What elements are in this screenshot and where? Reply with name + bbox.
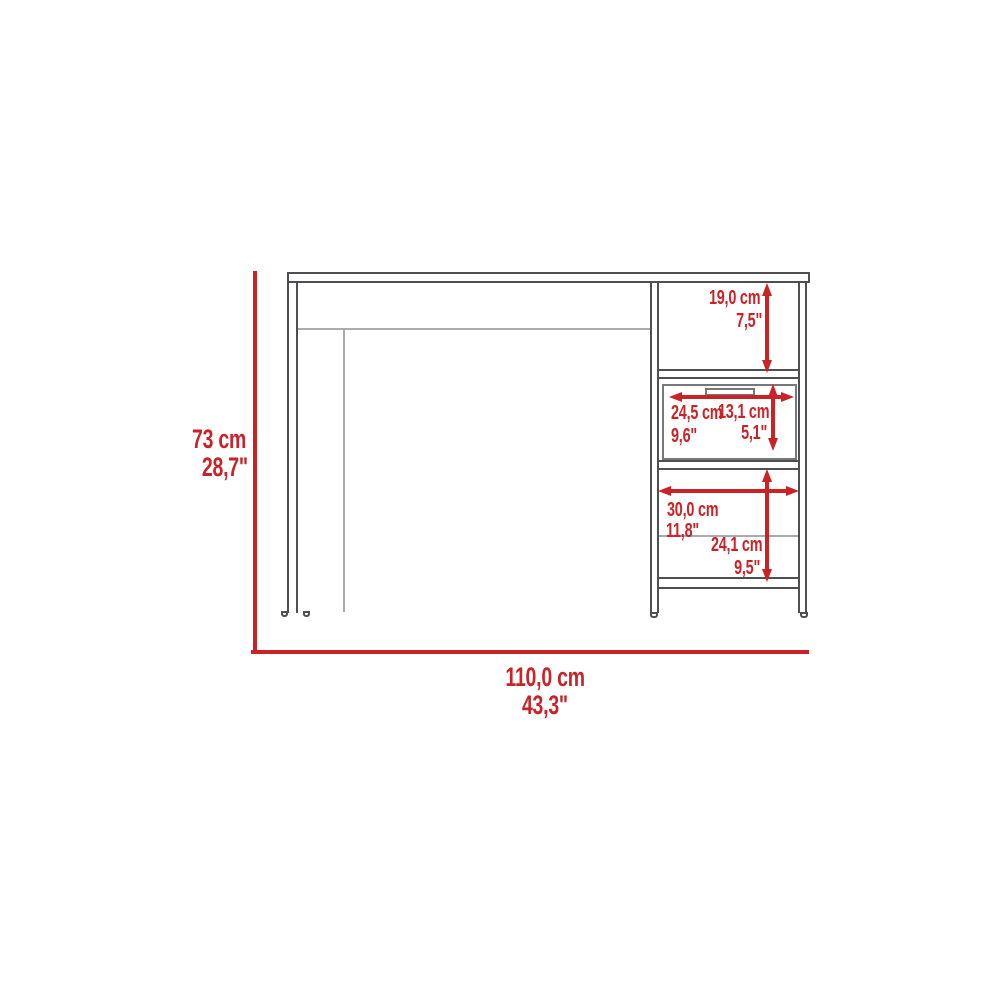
arrow-line [771, 393, 775, 442]
top-compartment-height-arrow [762, 283, 772, 373]
lower-compartment-width-label-cm: 30,0 cm [667, 500, 738, 520]
arrow-down-icon [762, 569, 772, 582]
drawer-height-label-cm: 13,1 cm [698, 402, 769, 422]
arrow-line [765, 292, 769, 364]
drawer-height-label-inch: 5,1" [731, 423, 767, 443]
overall-width-label-inch: 43,3" [430, 692, 660, 719]
lower-compartment-height-arrow [762, 469, 772, 582]
top-compartment-height-label-inch: 7,5" [726, 311, 762, 331]
desk-top-panel [287, 272, 810, 283]
cabinet-foot-right [800, 612, 808, 618]
arrow-line [765, 478, 769, 573]
arrow-right-icon [781, 392, 794, 402]
overall-width-dimension-line [251, 650, 809, 654]
arrow-down-icon [768, 438, 778, 451]
desk-left-leg-side-edge [343, 330, 345, 612]
cabinet-foot-left [650, 612, 658, 618]
cabinet-right-panel [798, 283, 807, 613]
desk-apron-edge [298, 328, 650, 330]
drawer-width-label-inch: 9,6" [671, 426, 707, 446]
cabinet-left-panel [650, 283, 659, 613]
desk-foot-front-left [281, 611, 288, 617]
desk-left-leg [287, 283, 298, 613]
top-compartment-height-label-cm: 19,0 cm [689, 288, 760, 308]
cabinet-middle-shelf [659, 460, 798, 470]
overall-height-dimension-line [253, 271, 257, 654]
arrow-down-icon [762, 360, 772, 373]
lower-compartment-width-arrow [658, 486, 799, 496]
cabinet-top-shelf [659, 369, 798, 379]
cabinet-bottom-shelf [659, 577, 798, 589]
arrow-right-icon [786, 486, 799, 496]
desk-foot-back-left [303, 611, 310, 617]
overall-width-label-cm: 110,0 cm [430, 664, 660, 691]
dimension-diagram: 73 cm 28,7" 110,0 cm 43,3" 19,0 cm 7,5" … [0, 0, 1000, 1000]
overall-height-label-inch: 28,7" [184, 454, 248, 481]
overall-height-label-cm: 73 cm [171, 426, 246, 453]
drawer-height-arrow [768, 384, 778, 451]
lower-compartment-height-label-cm: 24,1 cm [691, 535, 762, 555]
lower-compartment-height-label-inch: 9,5" [724, 558, 760, 578]
